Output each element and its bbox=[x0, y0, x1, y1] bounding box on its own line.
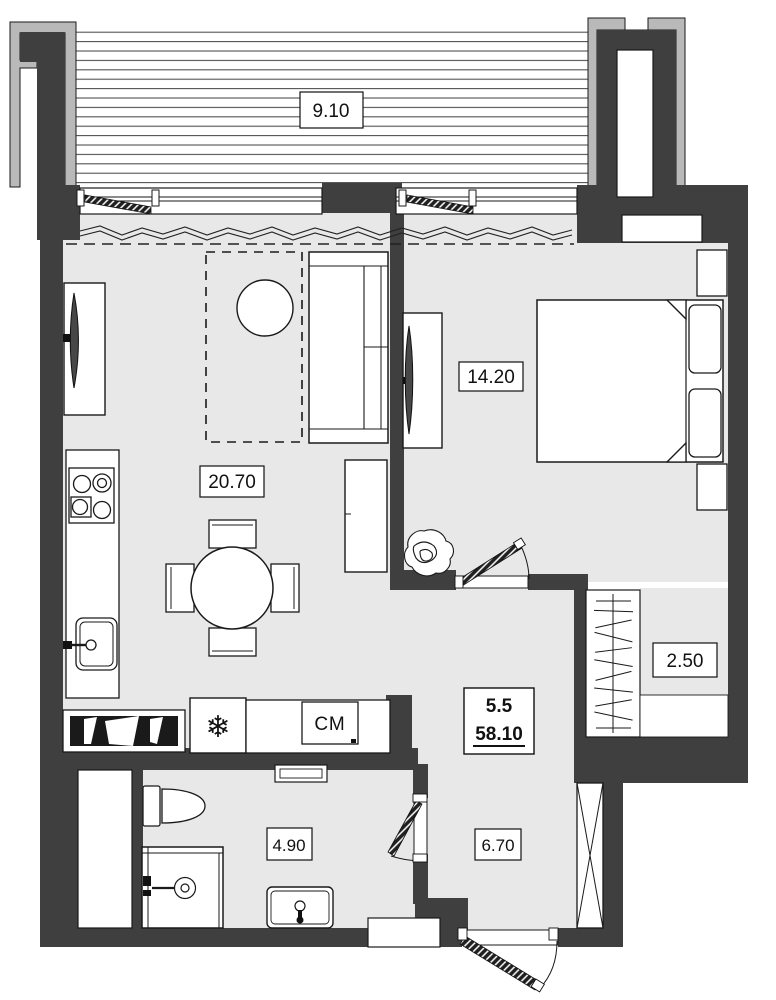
total-rooms-value: 5.5 bbox=[486, 696, 513, 717]
balcony-area-value: 9.10 bbox=[313, 101, 350, 122]
vent-shaft bbox=[617, 50, 653, 197]
duct-left-of-bathroom bbox=[78, 770, 132, 928]
window-sill-niche bbox=[622, 215, 702, 242]
dining-table bbox=[191, 547, 273, 629]
nightstand-bottom bbox=[697, 464, 727, 510]
double-bed bbox=[537, 300, 723, 462]
chair-right bbox=[271, 564, 299, 612]
burner bbox=[94, 502, 111, 519]
burner bbox=[73, 500, 88, 515]
stove bbox=[69, 468, 114, 523]
wall-left bbox=[40, 238, 63, 752]
hallway-furniture bbox=[577, 783, 603, 928]
nightstand-top bbox=[697, 250, 727, 296]
bathroom-area-value: 4.90 bbox=[272, 836, 305, 855]
snowflake-icon: ❄ bbox=[205, 711, 230, 744]
pillow bbox=[689, 305, 721, 373]
sink-faucet bbox=[295, 901, 305, 911]
shower bbox=[142, 847, 223, 928]
wall-closet-bottom bbox=[574, 737, 748, 783]
wall-corner-block bbox=[37, 185, 80, 240]
sofa bbox=[309, 252, 388, 443]
burner bbox=[74, 476, 91, 493]
chair-left bbox=[166, 564, 194, 612]
faucet bbox=[86, 640, 96, 650]
floor-plan: 9.10 20.70 14.20 2.50 4.90 6.70 5.5 58.1… bbox=[0, 0, 776, 1000]
bedroom-area-label: 14.20 bbox=[459, 362, 523, 391]
wall-window-pier bbox=[322, 183, 402, 213]
living-area-label: 20.70 bbox=[200, 466, 264, 497]
console-desk bbox=[345, 460, 387, 572]
burner bbox=[98, 479, 107, 488]
chair-bottom bbox=[209, 628, 256, 656]
washing-machine-label: СМ bbox=[314, 714, 345, 735]
hallway-area-value: 6.70 bbox=[481, 836, 514, 855]
hallway-area-label: 6.70 bbox=[475, 829, 521, 860]
wall-top-left-L bbox=[20, 32, 65, 187]
floor-plan-drawing: 9.10 20.70 14.20 2.50 4.90 6.70 5.5 58.1… bbox=[0, 0, 776, 1000]
bathroom-area-label: 4.90 bbox=[267, 828, 312, 860]
chair-top bbox=[209, 520, 256, 548]
bathroom-sink bbox=[267, 887, 333, 928]
closet-area-label: 2.50 bbox=[653, 643, 717, 677]
closet-area-value: 2.50 bbox=[667, 651, 704, 672]
total-area-value: 58.10 bbox=[475, 724, 523, 745]
shoe-cabinet bbox=[63, 710, 185, 752]
total-area-label: 5.5 58.10 bbox=[464, 688, 534, 754]
pillow bbox=[689, 389, 721, 457]
living-area-value: 20.70 bbox=[208, 472, 256, 493]
wall-right bbox=[728, 238, 748, 783]
wall-bedroom-door-right bbox=[528, 574, 588, 590]
towel-niche bbox=[275, 765, 327, 782]
wall-left-lower bbox=[40, 750, 78, 928]
closet-lower-section bbox=[640, 695, 728, 737]
wall-closet-west bbox=[574, 588, 586, 742]
bedroom-area-value: 14.20 bbox=[467, 367, 515, 388]
coffee-table bbox=[237, 280, 293, 336]
entry-threshold-niche bbox=[368, 918, 440, 947]
entrance-door bbox=[458, 928, 558, 992]
balcony-area-label: 9.10 bbox=[300, 92, 363, 128]
wall-partition bbox=[390, 206, 404, 576]
